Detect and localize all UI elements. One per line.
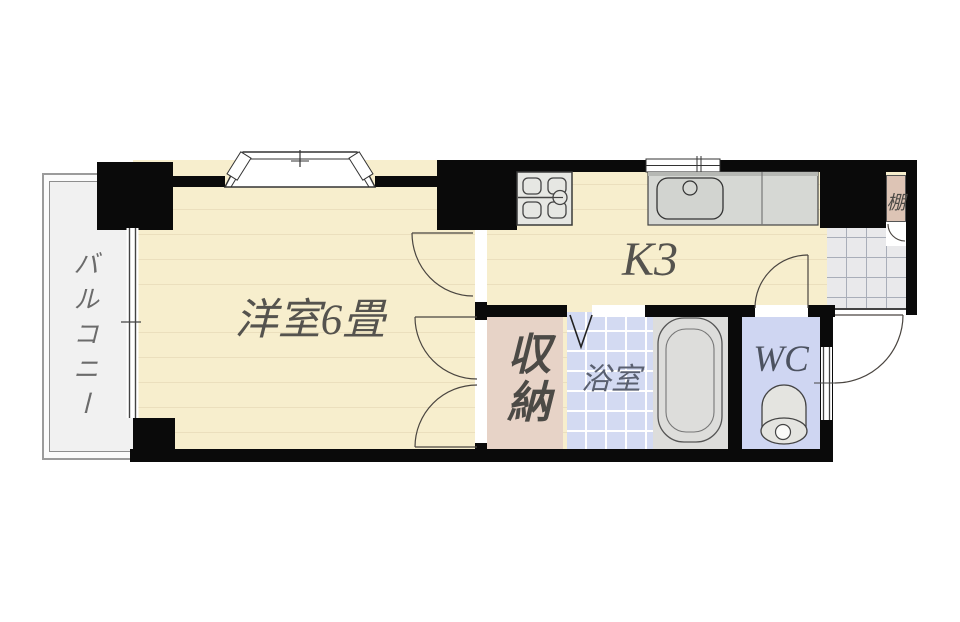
folding-door-icon bbox=[570, 315, 592, 347]
kitchen-sink-icon bbox=[648, 172, 818, 225]
stove-icon bbox=[517, 172, 572, 225]
wc-label: WC bbox=[744, 336, 818, 382]
bathtub-icon bbox=[658, 318, 722, 442]
toilet-icon bbox=[761, 385, 807, 444]
floorplan-canvas: バルコニー 洋室6畳 K3 収納 浴室 WC 棚 bbox=[0, 0, 960, 622]
balcony-label: バルコニー bbox=[62, 240, 106, 435]
entrance-door-arc bbox=[835, 315, 903, 383]
western-room-label: 洋室6畳 bbox=[205, 288, 415, 344]
shelf-door-arc bbox=[888, 224, 905, 241]
closet-double-doors-icon bbox=[415, 317, 477, 447]
bathroom-label: 浴室 bbox=[570, 356, 652, 396]
wc-door-arc bbox=[755, 255, 808, 308]
room-door-arc bbox=[412, 233, 473, 296]
bay-window-icon bbox=[225, 150, 375, 187]
storage-label: 収納 bbox=[496, 320, 552, 438]
linework-layer bbox=[0, 0, 960, 622]
balcony-sliding-window-icon bbox=[121, 228, 141, 418]
kitchen-label: K3 bbox=[595, 230, 705, 288]
shelf-label: 棚 bbox=[884, 188, 908, 214]
